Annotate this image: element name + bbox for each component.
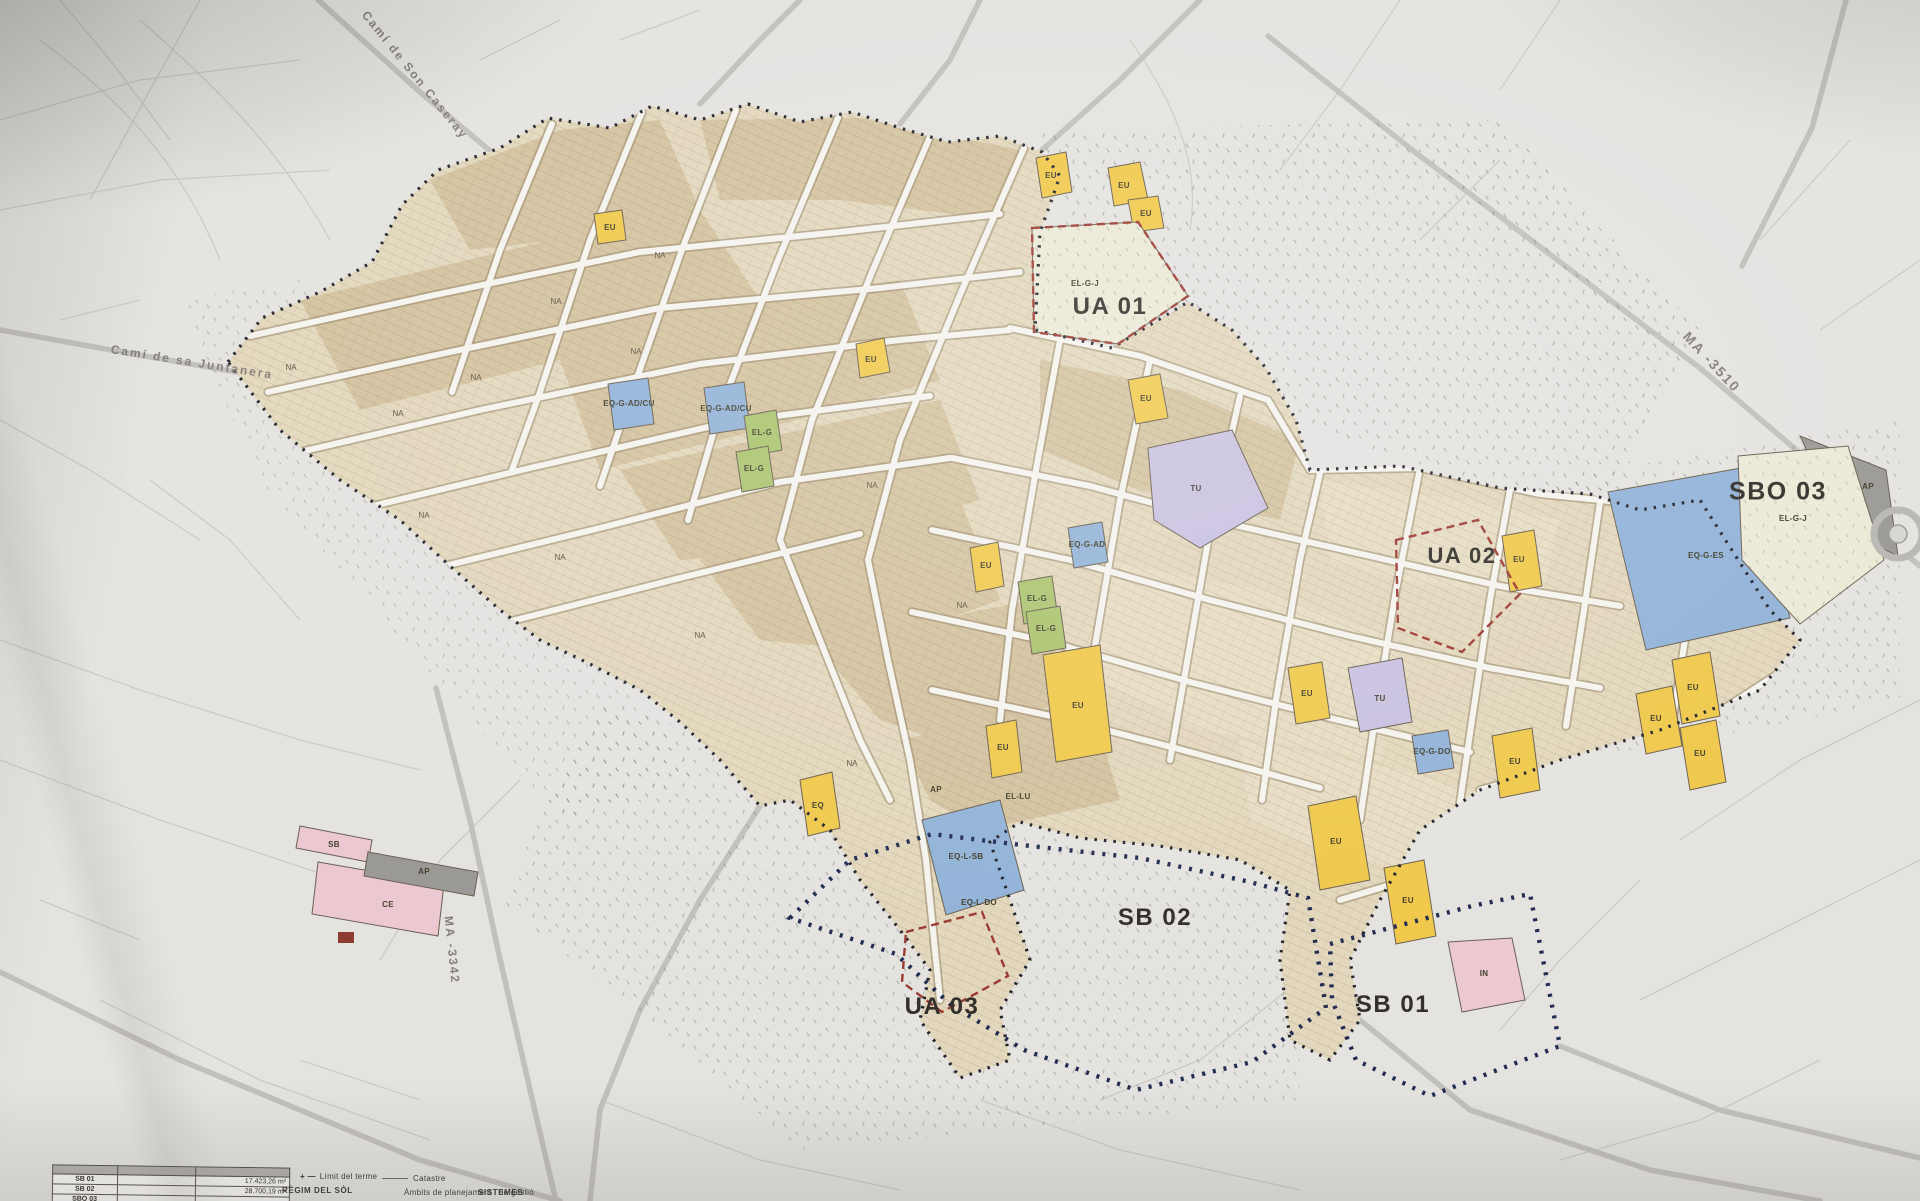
photographed-zoning-map: UA 01UA 02UA 03SB 01SB 02SBO 03Camí de S… xyxy=(0,0,1920,1201)
red-marker xyxy=(338,932,354,943)
map-canvas xyxy=(0,0,1920,1201)
